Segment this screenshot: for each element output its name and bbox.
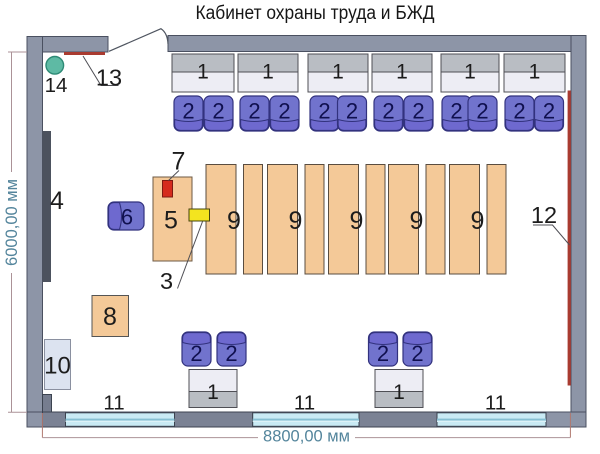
svg-text:10: 10	[44, 353, 71, 380]
svg-text:11: 11	[294, 392, 315, 415]
svg-text:8: 8	[103, 303, 117, 331]
svg-text:2: 2	[382, 99, 394, 124]
svg-text:2: 2	[450, 99, 462, 124]
svg-text:2: 2	[318, 99, 330, 124]
svg-text:7: 7	[172, 148, 186, 176]
svg-text:4: 4	[50, 187, 64, 215]
svg-text:13: 13	[96, 65, 122, 91]
svg-text:2: 2	[543, 99, 555, 124]
svg-text:2: 2	[513, 99, 525, 124]
svg-text:1: 1	[332, 61, 344, 84]
svg-text:1: 1	[207, 381, 219, 404]
svg-text:2: 2	[225, 341, 237, 366]
svg-text:2: 2	[212, 99, 224, 124]
svg-text:2: 2	[248, 99, 260, 124]
svg-text:Кабинет охраны труда и БЖД: Кабинет охраны труда и БЖД	[196, 3, 435, 24]
svg-text:9: 9	[289, 207, 303, 235]
svg-text:9: 9	[471, 207, 485, 235]
svg-text:2: 2	[411, 341, 423, 366]
svg-text:1: 1	[197, 61, 209, 84]
svg-text:2: 2	[412, 99, 424, 124]
svg-text:9: 9	[350, 207, 364, 235]
svg-text:2: 2	[346, 99, 358, 124]
svg-text:2: 2	[377, 341, 389, 366]
svg-text:8800,00 мм: 8800,00 мм	[263, 428, 350, 446]
svg-text:2: 2	[476, 99, 488, 124]
svg-text:6: 6	[121, 205, 133, 230]
svg-text:3: 3	[160, 268, 173, 294]
svg-text:1: 1	[393, 381, 405, 404]
svg-text:5: 5	[164, 207, 178, 235]
svg-text:14: 14	[45, 74, 68, 97]
svg-text:1: 1	[262, 61, 274, 84]
svg-text:2: 2	[182, 99, 194, 124]
svg-text:2: 2	[278, 99, 290, 124]
svg-text:2: 2	[190, 341, 202, 366]
svg-text:9: 9	[410, 207, 424, 235]
svg-text:1: 1	[529, 61, 541, 84]
svg-text:6000,00 мм: 6000,00 мм	[3, 179, 21, 266]
svg-text:12: 12	[531, 202, 557, 228]
svg-text:11: 11	[485, 392, 506, 415]
svg-text:1: 1	[396, 61, 408, 84]
svg-text:1: 1	[464, 61, 476, 84]
svg-text:11: 11	[103, 392, 124, 415]
svg-text:9: 9	[227, 207, 241, 235]
